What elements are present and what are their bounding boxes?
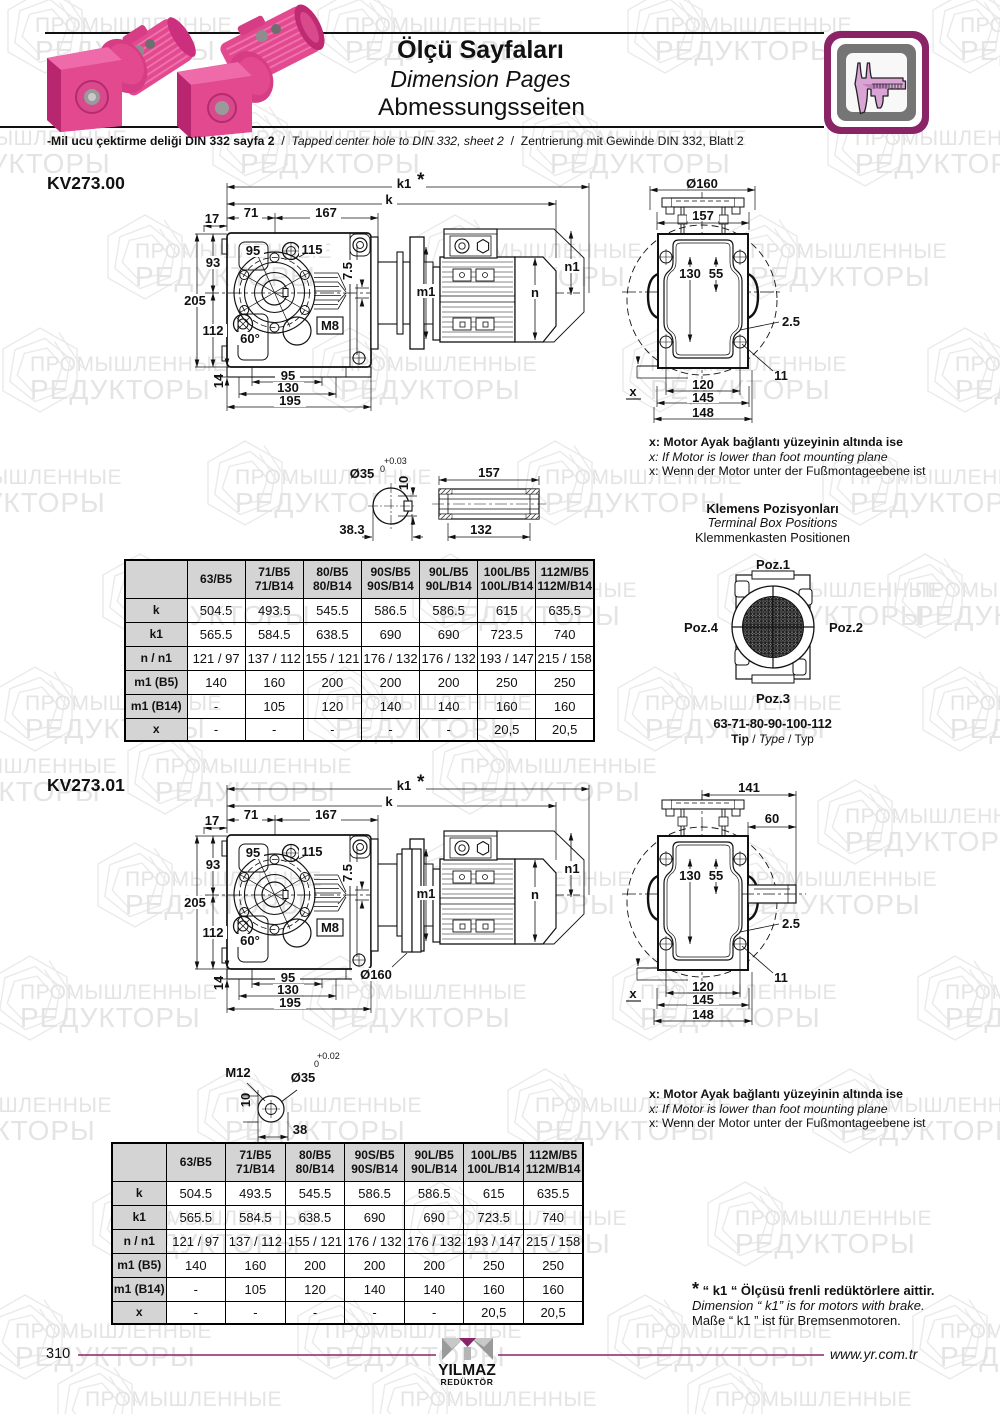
svg-text:2.5: 2.5 — [782, 314, 800, 329]
svg-text:95: 95 — [246, 243, 260, 258]
svg-text:Ø160: Ø160 — [360, 967, 392, 982]
svg-text:+0.02: +0.02 — [317, 1051, 340, 1061]
svg-text:167: 167 — [315, 205, 337, 220]
svg-text:+0.03: +0.03 — [384, 456, 407, 466]
svg-text:38: 38 — [293, 1122, 307, 1137]
svg-text:157: 157 — [692, 208, 714, 223]
svg-text:14: 14 — [211, 373, 226, 388]
svg-text:195: 195 — [279, 393, 301, 408]
svg-text:141: 141 — [738, 780, 760, 795]
svg-text:Ø35: Ø35 — [291, 1070, 316, 1085]
svg-text:157: 157 — [478, 465, 500, 480]
svg-text:Ø160: Ø160 — [686, 176, 718, 191]
svg-text:148: 148 — [692, 405, 714, 420]
svg-text:112: 112 — [203, 323, 224, 338]
svg-text:145: 145 — [692, 390, 714, 405]
svg-text:x: x — [629, 384, 637, 399]
svg-text:n1: n1 — [564, 259, 579, 274]
svg-text:17: 17 — [205, 211, 219, 226]
svg-text:M8: M8 — [321, 318, 339, 333]
svg-text:130: 130 — [679, 266, 701, 281]
svg-text:10: 10 — [396, 476, 411, 490]
svg-text:0: 0 — [380, 464, 385, 474]
svg-text:m1: m1 — [417, 284, 436, 299]
svg-text:Ø35: Ø35 — [350, 466, 375, 481]
svg-text:M12: M12 — [225, 1065, 250, 1080]
svg-text:n: n — [531, 285, 539, 300]
svg-text:93: 93 — [206, 255, 220, 270]
svg-text:11: 11 — [774, 368, 788, 383]
svg-text:60°: 60° — [240, 331, 260, 346]
svg-text:7.5: 7.5 — [340, 262, 355, 280]
svg-text:205: 205 — [184, 293, 206, 308]
svg-text:m1: m1 — [417, 886, 436, 901]
svg-text:10: 10 — [238, 1093, 253, 1107]
svg-text:0: 0 — [314, 1059, 319, 1069]
svg-text:38.3: 38.3 — [339, 522, 364, 537]
svg-text:115: 115 — [302, 242, 323, 257]
svg-text:55: 55 — [709, 266, 723, 281]
svg-text:60: 60 — [765, 811, 779, 826]
svg-text:132: 132 — [470, 522, 492, 537]
svg-text:71: 71 — [244, 205, 258, 220]
svg-text:*: * — [417, 170, 425, 191]
svg-text:REDÜKTÖR: REDÜKTÖR — [441, 1377, 494, 1387]
svg-text:k1: k1 — [397, 176, 411, 191]
svg-text:k: k — [385, 192, 393, 207]
